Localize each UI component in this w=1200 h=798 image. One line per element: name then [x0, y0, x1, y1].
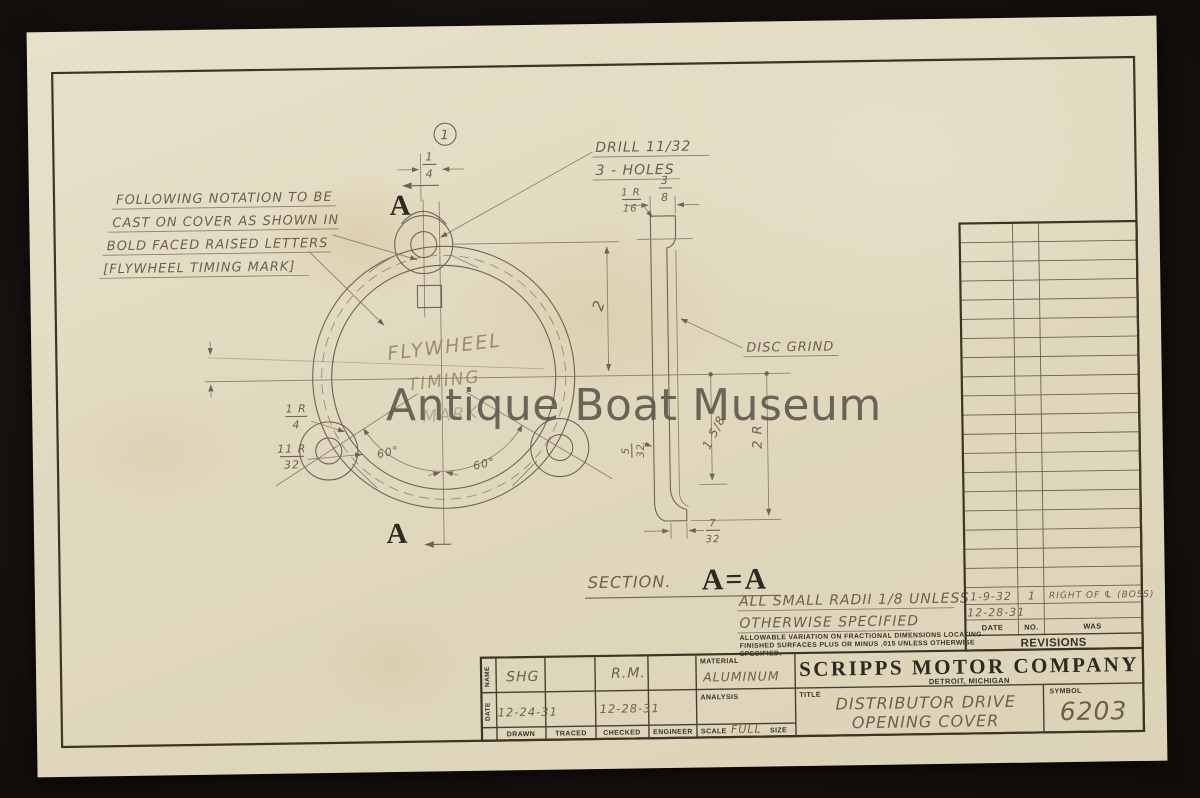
revision-entry-was: RIGHT OF ℄ (BOSS) [1049, 590, 1155, 602]
svg-text:1 R: 1 R [285, 402, 306, 415]
svg-text:2: 2 [589, 297, 609, 313]
cast-text-flywheel: FLYWHEEL [386, 330, 503, 366]
note-line: FOLLOWING NOTATION TO BE [116, 190, 333, 208]
revisions-row-line [962, 413, 1139, 416]
symbol-label: SYMBOL [1049, 688, 1082, 695]
svg-text:4: 4 [292, 418, 300, 431]
dim-foot-width: 7 32 [644, 518, 721, 546]
svg-text:1 R: 1 R [621, 187, 641, 198]
col-label-checked: CHECKED [603, 729, 641, 737]
leader-line [439, 152, 593, 237]
dim-wall-thickness: 5 32 [621, 443, 652, 458]
revisions-empty-rows [960, 240, 1142, 587]
revisions-row-line [960, 259, 1137, 262]
title-block: NAME DATE SHG R.M. 12-24-31 12-28-31 DRA… [481, 648, 1144, 741]
svg-text:8: 8 [661, 191, 669, 204]
section-cut-profile [650, 216, 687, 521]
photo-background: FOLLOWING NOTATION TO BE CAST ON COVER A… [0, 0, 1200, 798]
material-label: MATERIAL [700, 658, 739, 666]
note-line: [FLYWHEEL TIMING MARK] [103, 259, 296, 277]
drawn-date-value: 12-24-31 [498, 705, 558, 720]
radii-note: ALL SMALL RADII 1/8 UNLESS OTHERWISE SPE… [737, 590, 970, 632]
revisions-col-date: DATE [982, 623, 1004, 632]
disc-grind-note: DISC GRIND [681, 316, 839, 357]
dim-lug-radius: 11 R 32 [277, 441, 362, 471]
revisions-row-line [964, 547, 1141, 550]
revisions-row-line [961, 298, 1138, 301]
drawing-title-line2: OPENING COVER [852, 711, 1000, 732]
radii-note-line: ALL SMALL RADII 1/8 UNLESS [738, 590, 970, 609]
svg-text:3: 3 [661, 174, 669, 187]
svg-text:32: 32 [636, 443, 647, 458]
svg-text:4: 4 [426, 167, 434, 180]
note-line: BOLD FACED RAISED LETTERS [107, 236, 329, 254]
revisions-row-line [961, 355, 1138, 358]
svg-text:1: 1 [425, 150, 433, 163]
row-label-date: DATE [485, 702, 492, 721]
section-label-prefix: SECTION. [588, 572, 672, 592]
symbol-value: 6203 [1060, 696, 1128, 726]
detail-marker: 1 [434, 123, 456, 145]
svg-text:32: 32 [706, 534, 721, 545]
svg-text:32: 32 [284, 458, 300, 471]
col-label-drawn: DRAWN [507, 731, 536, 738]
revision-entry-date: 12-28-31 [967, 606, 1025, 620]
analysis-label: ANALYSIS [700, 694, 738, 702]
company-location: DETROIT, MICHIGAN [929, 676, 1010, 686]
checked-name-value: R.M. [611, 665, 646, 682]
drawn-name-value: SHG [506, 669, 539, 685]
revisions-title: REVISIONS [1021, 637, 1087, 650]
section-view: 3 8 1 R 16 DISC GRIND [617, 171, 841, 546]
revision-entry-date: 1-9-32 [970, 590, 1012, 604]
leader-line [309, 250, 384, 326]
revisions-row-line [962, 393, 1139, 396]
material-value: ALUMINUM [702, 668, 780, 684]
revision-entry-no: 1 [1028, 590, 1036, 603]
section-letter-top: A [389, 190, 410, 222]
revisions-col-no: NO. [1024, 622, 1039, 631]
cast-lettering-note: FOLLOWING NOTATION TO BE CAST ON COVER A… [98, 189, 418, 330]
revisions-row-line [963, 489, 1140, 492]
angle-label-right: 60° [472, 455, 497, 473]
revisions-row-line [961, 317, 1138, 320]
revisions-col-was: WAS [1083, 622, 1101, 631]
angle-label-left: 60° [376, 444, 401, 462]
title-label: TITLE [799, 692, 821, 699]
revisions-row-line [964, 528, 1141, 531]
row-label-name: NAME [484, 666, 491, 687]
revisions-row-line [963, 432, 1140, 435]
leader-line [333, 234, 417, 261]
dim-flange-radius: 1 R 16 [621, 187, 652, 217]
revisions-row-line [962, 374, 1139, 377]
svg-text:16: 16 [623, 203, 638, 214]
checked-date-value: 12-28-31 [600, 701, 660, 716]
scale-label: SCALE [701, 728, 727, 735]
revisions-row-line [960, 240, 1137, 243]
revisions-row-line [963, 451, 1140, 454]
revisions-row-line [964, 508, 1141, 511]
svg-text:5: 5 [621, 447, 632, 455]
col-label-engineer: ENGINEER [653, 729, 693, 737]
detail-marker-number: 1 [440, 128, 450, 143]
timing-mark-boss [417, 285, 441, 307]
revisions-row-line [963, 470, 1140, 473]
svg-text:7: 7 [709, 518, 717, 529]
size-label: SIZE [770, 727, 787, 734]
revisions-row-line [960, 278, 1137, 281]
revisions-row-line [965, 566, 1142, 569]
disc-grind-label: DISC GRIND [746, 339, 834, 355]
col-label-traced: TRACED [555, 730, 587, 737]
drill-note-line: DRILL 11/32 [595, 139, 691, 156]
radii-note-line: OTHERWISE SPECIFIED [739, 613, 919, 632]
watermark: Antique Boat Museum [386, 380, 882, 431]
revisions-row-line [965, 585, 1142, 588]
scale-value: FULL [731, 723, 762, 736]
revisions-row-line [961, 336, 1138, 339]
lug-lower-left [299, 422, 358, 481]
section-label-letters: A=A [701, 562, 768, 596]
section-letter-bottom: A [386, 518, 407, 550]
svg-text:11 R: 11 R [277, 442, 306, 455]
note-line: CAST ON COVER AS SHOWN IN [112, 213, 339, 231]
revisions-table: 1-9-32 1 RIGHT OF ℄ (BOSS) 12-28-31 DATE… [959, 221, 1155, 651]
leader-line [681, 318, 742, 349]
